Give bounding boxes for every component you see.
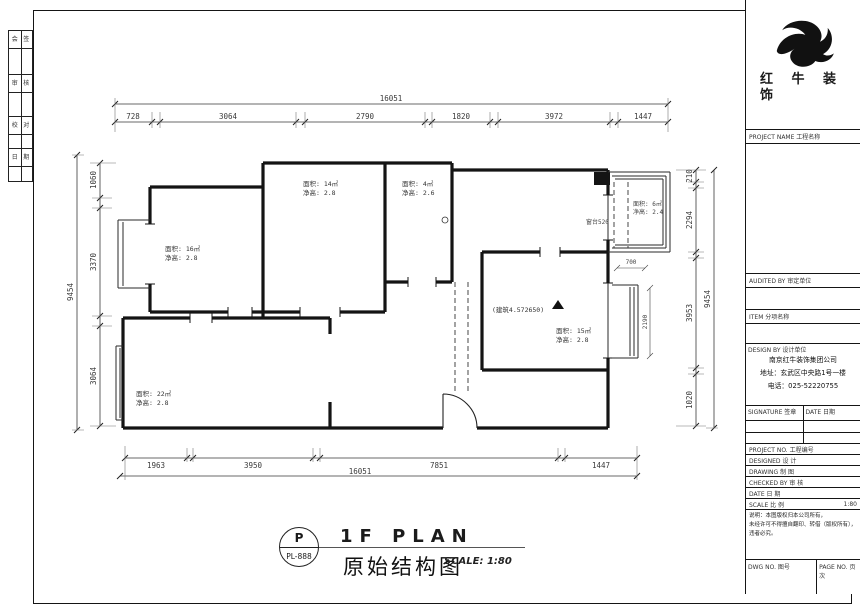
bubble-code: PL-888 <box>280 552 318 561</box>
room-label: 面积: 14㎡ <box>303 179 339 188</box>
stamp-col-signature: SIGNATURE 签章 <box>746 406 804 443</box>
dim-right-1: 2294 <box>685 210 694 229</box>
room-label: 净高: 2.8 <box>556 335 589 344</box>
notes-cell: 说明：本图版权归本公司所有， 未经许可不得擅自翻印、转借（版权所有）， 违者必究… <box>746 510 860 560</box>
field-label: DESIGNED 设 计 <box>749 456 796 465</box>
bottom-row: DWG NO. 图号 PAGE NO. 页次 <box>746 560 860 594</box>
note-line: 未经许可不得擅自翻印、转借（版权所有）， <box>749 521 857 530</box>
dim-left-1: 3370 <box>89 252 98 271</box>
page-cell: PAGE NO. 页次 <box>817 560 860 594</box>
binding-strip: 会签 审核 校对 日期 <box>8 30 33 182</box>
sill-label: 窗台520 <box>586 218 609 226</box>
strip-char: 日 <box>9 155 21 161</box>
strip-char: 签 <box>21 37 33 43</box>
small-dim-a-text: 700 <box>626 259 637 266</box>
room-label: 净高: 2.4 <box>633 208 663 216</box>
strip-cell: 校对 <box>9 117 32 135</box>
audit-cell <box>746 288 860 310</box>
company-phone: 电话：025-52220755 <box>748 380 858 393</box>
small-dim-b-text: 2190 <box>642 314 649 329</box>
logo-text: 红 牛 装 饰 <box>760 72 846 105</box>
dim-bottom-0: 1963 <box>147 461 165 470</box>
stamp-empty-row <box>804 421 860 433</box>
note-line: 说明：本图版权归本公司所有， <box>749 512 857 521</box>
dim-bottom-2: 7851 <box>430 461 448 470</box>
stamp-empty-row <box>746 421 803 433</box>
strip-char: 会 <box>9 37 21 43</box>
room-label: 净高: 2.6 <box>402 188 435 197</box>
stamp-signature-label: SIGNATURE 签章 <box>746 406 803 421</box>
field-value: 1:80 <box>844 501 857 508</box>
dimension-ticks <box>74 101 717 479</box>
bubble-letter: P <box>280 531 318 545</box>
company-name: 南京红牛装饰集团公司 <box>748 354 858 367</box>
plan-scale: SCALE: 1:80 <box>444 556 512 567</box>
dim-left-total: 9454 <box>66 282 75 301</box>
strip-cell: 日期 <box>9 149 32 167</box>
dim-bottom-3: 1447 <box>592 461 610 470</box>
bubble-divider <box>280 547 318 548</box>
field-label: SCALE 比 例 <box>749 500 784 509</box>
plan-bubble: P PL-888 <box>279 527 319 567</box>
dim-left-2: 3064 <box>89 366 98 385</box>
dim-bottom-1: 3950 <box>244 461 263 470</box>
room-label: 净高: 2.8 <box>136 398 169 407</box>
field-label: PROJECT NO. 工程编号 <box>749 445 814 454</box>
stamp-empty-row <box>746 433 803 444</box>
strip-cell: 审核 <box>9 75 32 93</box>
redbull-logo-icon <box>764 14 842 68</box>
room-label: 面积: 4㎡ <box>402 179 434 188</box>
dim-right-0: 210 <box>685 169 694 183</box>
dim-right-3: 1020 <box>685 390 694 409</box>
stamp-table: SIGNATURE 签章 DATE 日期 <box>746 406 860 444</box>
extension-lines <box>72 98 718 480</box>
dim-left-0: 1060 <box>89 170 98 189</box>
note-line: 违者必究。 <box>749 530 857 539</box>
title-divider-line <box>299 547 525 548</box>
elevation-label: (建筑4.572650) <box>492 305 544 314</box>
drawing-sheet: 会签 审核 校对 日期 <box>0 0 860 612</box>
dwg-no-cell: DWG NO. 图号 <box>746 560 817 594</box>
room-label: 净高: 2.8 <box>303 188 336 197</box>
dim-top-5: 1447 <box>634 112 652 121</box>
strip-spacer <box>9 49 32 75</box>
entry-door <box>443 394 477 428</box>
field-row-scale: SCALE 比 例1:80 <box>746 499 860 509</box>
field-table: PROJECT NO. 工程编号 DESIGNED 设 计 DRAWING 制 … <box>746 444 860 510</box>
dim-top-total: 16051 <box>380 94 403 103</box>
field-row-project-no: PROJECT NO. 工程编号 <box>746 444 860 455</box>
room-label: 面积: 22㎡ <box>136 389 172 398</box>
strip-char: 对 <box>21 123 33 129</box>
dim-top-0: 728 <box>126 112 140 121</box>
strip-char: 校 <box>9 123 21 129</box>
wall-pier <box>594 172 610 185</box>
stamp-date-label: DATE 日期 <box>804 406 860 421</box>
item-cell <box>746 324 860 344</box>
elevation-marker-icon <box>552 300 564 309</box>
dim-right-total: 9454 <box>703 289 712 308</box>
strip-spacer <box>9 93 32 117</box>
field-label: CHECKED BY 审 核 <box>749 478 803 487</box>
plan-title-en: 1F PLAN <box>340 526 474 547</box>
dim-top-4: 3972 <box>545 112 563 121</box>
logo-cell: 红 牛 装 饰 <box>746 0 860 130</box>
dim-top-2: 2790 <box>356 112 375 121</box>
door-jambs <box>145 195 613 358</box>
strip-spacer <box>9 135 32 149</box>
title-block: 红 牛 装 饰 PROJECT NAME 工程名称 AUDITED BY 审定单… <box>745 0 860 594</box>
plan-walls <box>123 163 608 428</box>
floor-plan: 16051 728 3064 2790 1820 3972 1447 1963 … <box>33 10 737 604</box>
strip-char: 审 <box>9 81 21 87</box>
drain-symbol <box>442 217 448 223</box>
dim-right-2: 3953 <box>685 304 694 322</box>
room-label: 净高: 2.8 <box>165 253 198 262</box>
design-by-label: DESIGN BY 设计单位 <box>748 345 858 354</box>
dim-bottom-total: 16051 <box>349 467 372 476</box>
audit-row: AUDITED BY 审定单位 <box>746 274 860 288</box>
field-row-designed: DESIGNED 设 计 <box>746 455 860 466</box>
room-label: 面积: 6㎡ <box>633 200 662 208</box>
field-label: DATE 日 期 <box>749 489 780 498</box>
dim-top-3: 1820 <box>452 112 471 121</box>
company-address: 地址：玄武区中央路1号一楼 <box>748 367 858 380</box>
dim-top-1: 3064 <box>219 112 238 121</box>
stamp-empty-row <box>804 433 860 444</box>
field-row-checked: CHECKED BY 审 核 <box>746 477 860 488</box>
field-label: DRAWING 制 图 <box>749 467 794 476</box>
project-name-cell <box>746 144 860 274</box>
dimension-lines <box>77 104 714 476</box>
field-row-date: DATE 日 期 <box>746 488 860 499</box>
room-label: 面积: 16㎡ <box>165 244 201 253</box>
strip-cell: 会签 <box>9 31 32 49</box>
project-name-row: PROJECT NAME 工程名称 <box>746 130 860 144</box>
room-label: 面积: 15㎡ <box>556 326 592 335</box>
item-row: ITEM 分项名称 <box>746 310 860 324</box>
field-row-drawing: DRAWING 制 图 <box>746 466 860 477</box>
strip-char: 期 <box>21 155 33 161</box>
company-cell: DESIGN BY 设计单位 南京红牛装饰集团公司 地址：玄武区中央路1号一楼 … <box>746 344 860 406</box>
stamp-col-date: DATE 日期 <box>804 406 860 443</box>
strip-char: 核 <box>21 81 33 87</box>
windows <box>116 172 670 420</box>
